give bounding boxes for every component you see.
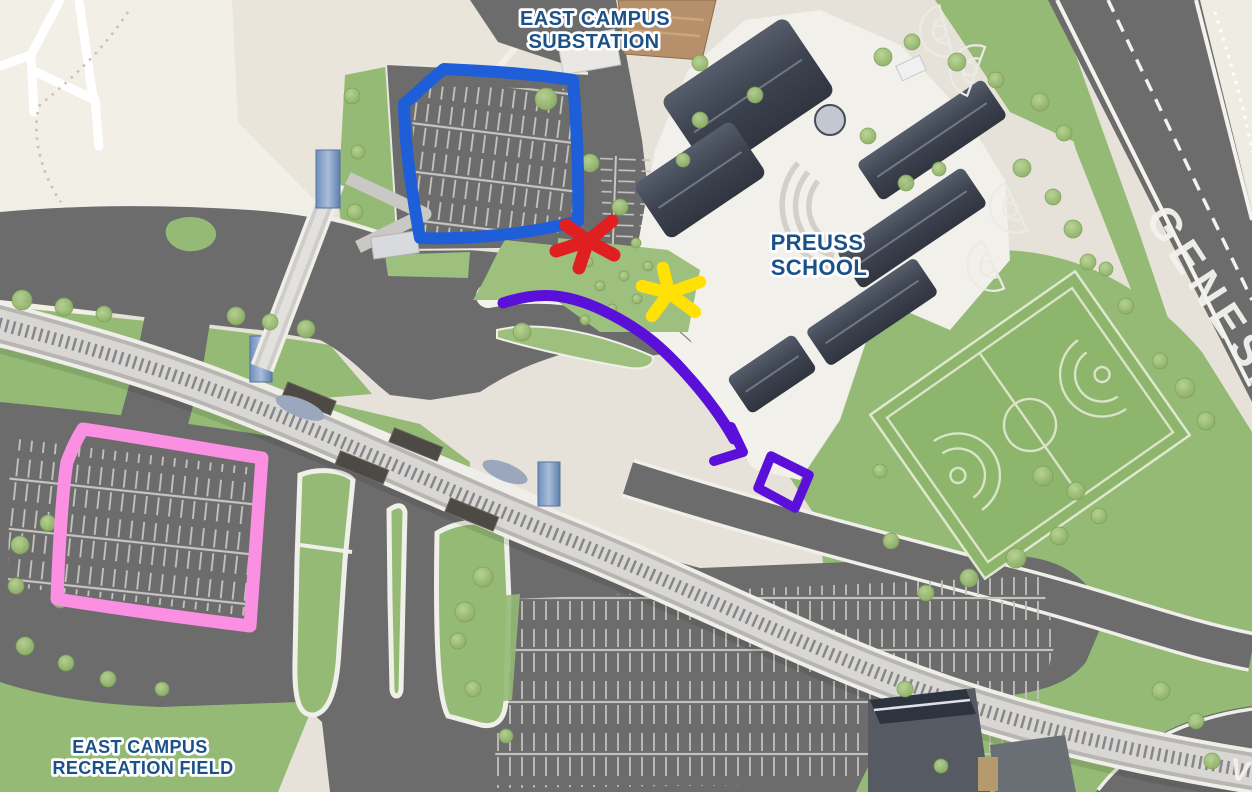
substation-label-line1: EAST CAMPUS: [520, 8, 670, 30]
preuss-label-line1: PREUSS: [771, 230, 864, 255]
rotunda: [815, 105, 845, 135]
campus-map-canvas: GENESE V EAST CAMPUS SUBSTATION PREUSS S…: [0, 0, 1252, 792]
substation-label-line2: SUBSTATION: [528, 31, 659, 53]
preuss-label-line2: SCHOOL: [771, 255, 868, 280]
elevator-tower: [316, 150, 340, 208]
recreation-label-line2: RECREATION FIELD: [52, 758, 233, 778]
campus-map: GENESE V EAST CAMPUS SUBSTATION PREUSS S…: [0, 0, 1252, 792]
elevator-tower: [538, 462, 560, 506]
recreation-label-line1: EAST CAMPUS: [72, 737, 207, 757]
